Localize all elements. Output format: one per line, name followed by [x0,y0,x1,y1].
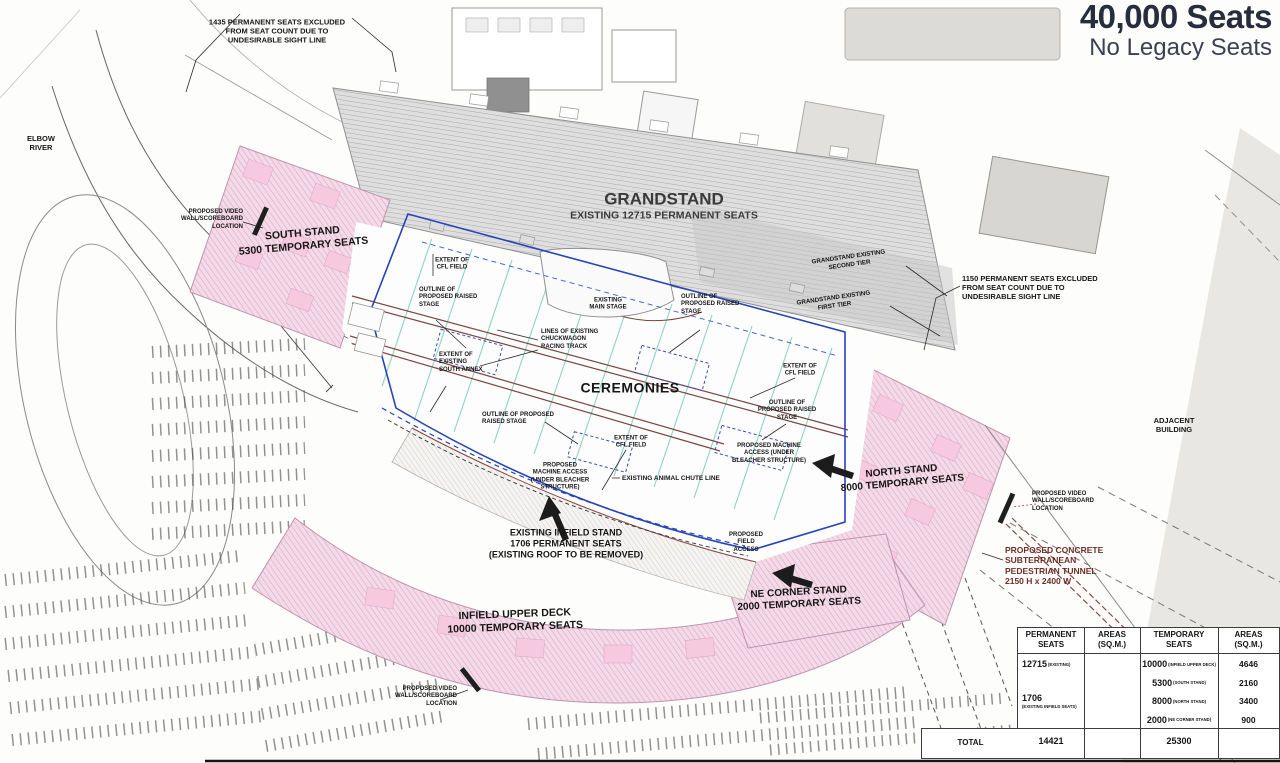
cell-temp-south-stand: 5300 (SOUTH STAND) [1140,677,1218,689]
label-infield-stand: EXISTING INFIELD STAND 1706 PERMANENT SE… [489,528,643,561]
label-outline-stage-south: OUTLINE OF PROPOSED RAISED STAGE [482,412,554,427]
cell-total-permanent: 14421 [1018,736,1084,746]
header-permanent-seats: PERMANENT SEATS [1018,630,1084,650]
label-machine-access-east: PROPOSED MACHINE ACCESS (UNDER BLEACHER … [732,443,806,465]
label-extent-cfl-east: EXTENT OF CFL FIELD [783,364,817,379]
header-areas-2: AREAS (SQ.M.) [1218,630,1279,650]
label-video-wall-south: PROPOSED VIDEO WALL/SCOREBOARD LOCATION [352,686,457,708]
label-machine-access-south: PROPOSED MACHINE ACCESS (UNDER BLEACHER … [531,462,589,491]
seat-count-subtitle: No Legacy Seats [1080,35,1272,61]
label-grandstand-sub: EXISTING 12715 PERMANENT SEATS [570,210,758,223]
header-temporary-seats: TEMPORARY SEATS [1140,630,1218,650]
cell-area-south-stand: 2160 [1218,677,1279,689]
label-pedestrian-tunnel: PROPOSED CONCRETE SUBTERRANEAN PEDESTRIA… [1005,545,1103,586]
label-video-wall-east: PROPOSED VIDEO WALL/SCOREBOARD LOCATION [1032,491,1094,513]
label-south-annex: EXTENT OF EXISTING SOUTH ANNEX [439,352,482,374]
plan-title-block: 40,000 Seats No Legacy Seats [1080,0,1272,61]
label-grandstand: GRANDSTAND [604,190,724,211]
cell-permanent-infield-note: (EXISTING INFIELD SEATS) [1022,704,1077,709]
cell-temp-ne-corner: 2000 (NE CORNER STAND) [1140,714,1218,726]
label-outline-stage-east: OUTLINE OF PROPOSED RAISED STAGE [758,400,816,422]
cell-temp-upper-deck: 10000 (INFIELD UPPER DECK) [1140,658,1218,670]
label-video-wall-west: PROPOSED VIDEO WALL/SCOREBOARD LOCATION [148,209,243,231]
cell-permanent-existing: 12715 (EXISTING) [1022,658,1070,670]
label-extent-cfl-south: EXTENT OF CFL FIELD [614,436,648,451]
note-1150-excluded: 1150 PERMANENT SEATS EXCLUDED FROM SEAT … [962,274,1098,301]
cell-area-ne-corner: 900 [1218,714,1279,726]
label-main-stage: EXISTING MAIN STAGE [589,298,626,313]
cell-total-temporary: 25300 [1140,736,1218,746]
label-elbow-river: ELBOW RIVER [27,134,55,152]
label-chuckwagon-track: LINES OF EXISTING CHUCKWAGON RACING TRAC… [541,329,598,351]
stadium-site-plan: 40,000 Seats No Legacy Seats 1435 PERMAN… [0,0,1280,763]
label-outline-stage-north: OUTLINE OF PROPOSED RAISED STAGE [681,294,739,316]
label-outline-stage-west: OUTLINE OF PROPOSED RAISED STAGE [419,287,477,309]
seat-count-table: PERMANENT SEATS AREAS (SQ.M.) TEMPORARY … [1017,627,1280,759]
note-1435-excluded: 1435 PERMANENT SEATS EXCLUDED FROM SEAT … [209,17,345,44]
label-adjacent-building: ADJACENT BUILDING [1154,416,1195,434]
cell-permanent-infield: 1706 [1022,692,1042,704]
cell-total-label: TOTAL [921,728,1019,759]
label-ceremonies: CEREMONIES [580,379,679,396]
cell-area-north-stand: 3400 [1218,695,1279,707]
label-field-access: PROPOSED FIELD ACCESS [729,532,763,554]
label-animal-chute: EXISTING ANIMAL CHUTE LINE [622,475,720,483]
cell-area-upper-deck: 4646 [1218,658,1279,670]
seat-count-title: 40,000 Seats [1080,0,1272,35]
label-infield-upper-deck: INFIELD UPPER DECK 10000 TEMPORARY SEATS [447,606,584,636]
header-areas-1: AREAS (SQ.M.) [1084,630,1140,650]
label-extent-cfl-north: EXTENT OF CFL FIELD [435,258,469,273]
cell-temp-north-stand: 8000 (NORTH STAND) [1140,695,1218,707]
